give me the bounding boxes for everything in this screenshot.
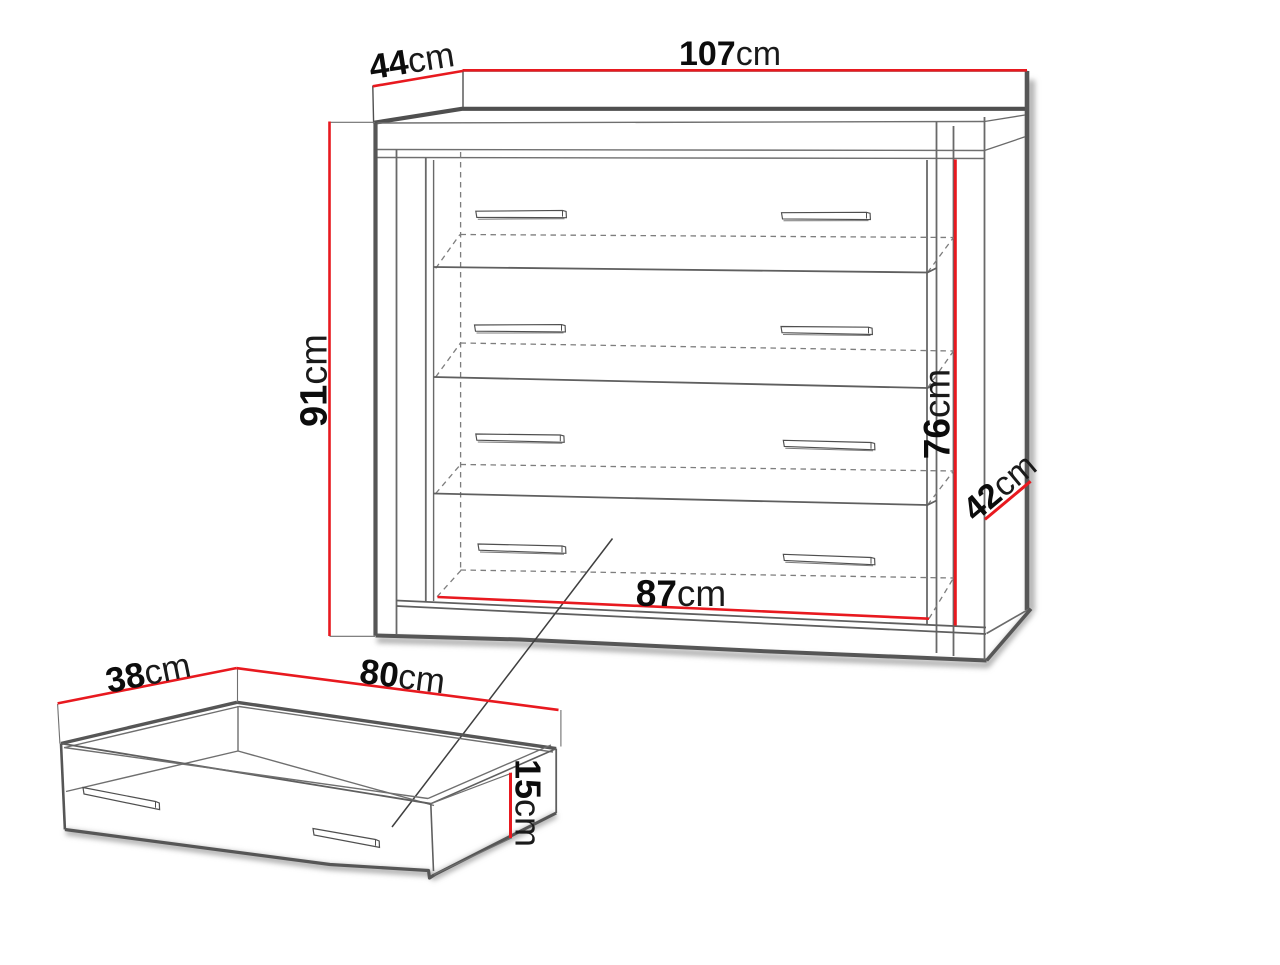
svg-text:15cm: 15cm xyxy=(508,759,549,847)
svg-text:87cm: 87cm xyxy=(636,573,726,614)
svg-text:107cm: 107cm xyxy=(679,35,781,73)
svg-text:91cm: 91cm xyxy=(294,334,336,427)
svg-text:76cm: 76cm xyxy=(917,369,958,459)
